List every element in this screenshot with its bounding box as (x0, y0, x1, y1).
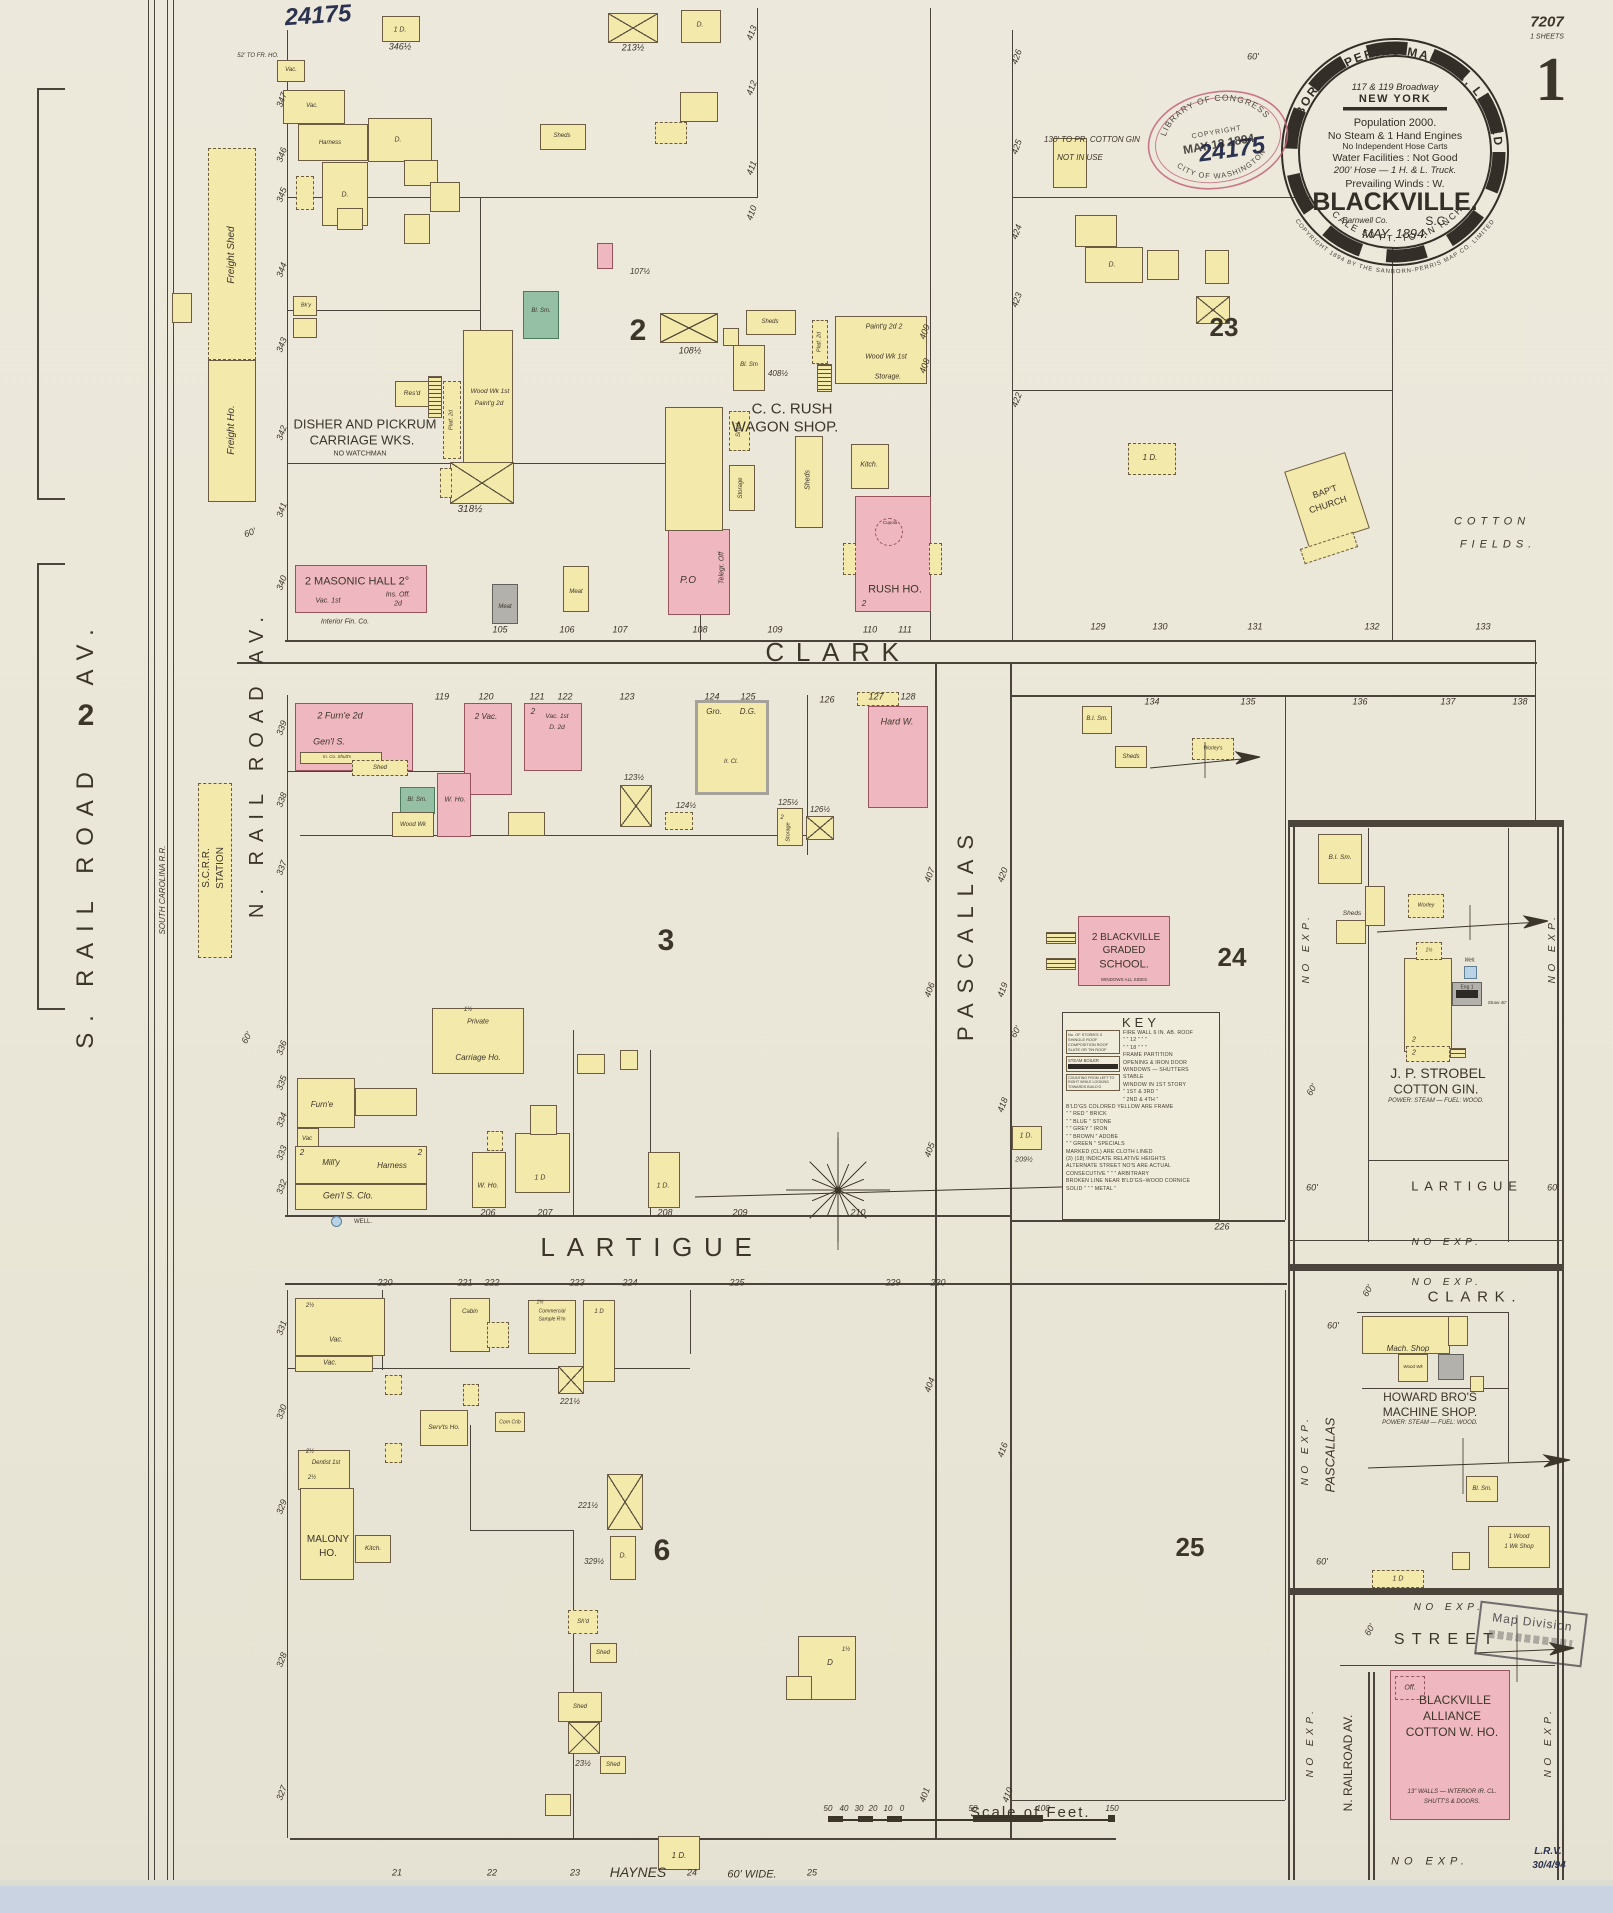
map-label: 123½ (624, 774, 644, 782)
map-label: Platf. 2d (449, 410, 455, 430)
key-steam-boiler: STEAM BOILER (1068, 1058, 1099, 1063)
map-label: NOT IN USE (1057, 154, 1103, 162)
map-line (37, 563, 39, 1010)
map-label: Wood Wk (1403, 1365, 1423, 1370)
map-label: 1 Wk Shop (1504, 1544, 1533, 1550)
map-label: 1 SHEETS (1530, 34, 1564, 41)
map-label: Worley (1417, 903, 1434, 909)
building (558, 1366, 584, 1394)
map-line (470, 1530, 573, 1531)
map-label: 138 (1512, 698, 1527, 707)
map-label: 220 (377, 1279, 392, 1288)
map-label: 2 (1412, 1050, 1416, 1057)
map-label: 2 (862, 600, 866, 608)
map-label: 121 (529, 693, 544, 702)
block-24: 24 (1218, 944, 1247, 970)
map-line (1340, 1665, 1555, 1666)
map-label: Shed (573, 1704, 587, 1710)
key-line: ” 2ND & 4TH ” (1123, 1097, 1216, 1104)
map-label: B.I. Sm. (1086, 716, 1107, 722)
seal-address: 117 & 119 Broadway (1352, 82, 1440, 93)
map-label: 60' (1247, 53, 1259, 62)
scale-tick: 10 (884, 1804, 893, 1813)
map-label: Storage (786, 822, 792, 841)
building (648, 1152, 680, 1208)
map-label: Mill'y (322, 1159, 340, 1167)
seal-state: S.C. (1425, 214, 1448, 228)
seal-county: Barnwell Co. (1342, 216, 1387, 225)
map-label: 209 (732, 1209, 747, 1218)
seal-hose: 200' Hose — 1 H. & L. Truck. (1333, 165, 1457, 176)
map-label: 52' TO FR. HO. (237, 53, 278, 59)
map-line (1293, 820, 1295, 1913)
map-line (1012, 197, 1392, 198)
map-label: 21 (392, 1869, 402, 1878)
key-line: MARKED (CL) ARE CLOTH LINED (1066, 1149, 1216, 1156)
map-label: 108½ (679, 347, 702, 356)
sheet-number: 1 (1536, 49, 1567, 111)
map-line (167, 0, 168, 1913)
building (172, 293, 192, 323)
map-label: NO EXP. (1412, 1238, 1483, 1248)
key-line: SOLID ” ” ” METAL ” (1066, 1186, 1216, 1193)
map-label: 60' (1305, 1083, 1319, 1098)
seal-city: NEW YORK (1359, 93, 1431, 105)
scale-tick: 150 (1105, 1804, 1118, 1813)
map-label: 420 (996, 866, 1010, 883)
map-label: D. (620, 1553, 627, 1560)
key-line: ” ” 18 ” ” ” (1123, 1045, 1216, 1052)
label-freight-shed: Freight Shed (227, 226, 237, 283)
map-line (1562, 820, 1564, 1913)
building (843, 543, 856, 575)
map-label: Bl. Sm (740, 362, 758, 368)
building (1147, 250, 1179, 280)
map-label: 1½ (464, 1007, 472, 1013)
map-label: In. Co. Shutt's (323, 755, 351, 760)
map-label: D.G. (740, 708, 756, 716)
map-label: 2 (78, 701, 95, 731)
map-label: CARRIAGE WKS. (310, 434, 415, 447)
map-label: WAGON SHOP. (732, 420, 839, 435)
map-label: 419 (996, 981, 1010, 998)
map-label: 1 D. (394, 27, 407, 34)
map-line (37, 88, 65, 90)
key-title: KEY (1066, 1015, 1216, 1030)
map-line (1368, 1672, 1370, 1905)
map-label: Vac. (306, 103, 318, 109)
building (385, 1443, 402, 1463)
map-line (285, 1283, 1287, 1285)
map-label: 2½ (306, 1303, 314, 1309)
map-label: Gen'l S. (313, 738, 345, 747)
key-line: ALTERNATE STREET NO'S ARE ACTUAL (1066, 1163, 1216, 1170)
building (472, 1152, 506, 1208)
street-haynes: HAYNES (610, 1865, 667, 1879)
map-label: 209½ (1015, 1157, 1033, 1164)
seal-winds: Prevailing Winds : W. (1345, 178, 1444, 190)
map-label: 426 (1010, 48, 1024, 65)
map-label: POWER: STEAM — FUEL: WOOD. (1388, 1098, 1484, 1104)
map-line (1508, 1312, 1509, 1462)
map-label: 126 (819, 696, 834, 705)
key-line: ” ” RED ” BRICK (1066, 1111, 1216, 1118)
map-line (1557, 820, 1559, 1913)
map-label: 213½ (622, 44, 645, 53)
map-label: Carriage Ho. (455, 1054, 500, 1062)
key-line: BROKEN LINE NEAR B'LD'GS–WOOD CORNICE (1066, 1178, 1216, 1185)
map-label: 133 (1475, 623, 1490, 632)
map-line (1010, 695, 1535, 697)
map-label: 129 (1090, 623, 1105, 632)
map-label: Harness (377, 1162, 407, 1170)
map-label: Sheds (553, 133, 570, 139)
map-label: Gen'l S. Clo. (323, 1192, 373, 1201)
map-label: NO EXP. (1301, 1415, 1311, 1486)
map-line (1357, 1312, 1509, 1313)
map-label: N. RAILROAD AV. (1342, 1715, 1354, 1812)
building (295, 565, 427, 613)
map-label: 1½ (842, 1647, 850, 1653)
svg-text:COPYRIGHT 1894 BY THE SANBORN-: COPYRIGHT 1894 BY THE SANBORN-PERRIS MAP… (1294, 218, 1497, 275)
map-label: Paint'g 2d 2 (866, 324, 903, 331)
map-line (287, 1290, 288, 1838)
key-line: ” 1ST & 3RD ” (1123, 1089, 1216, 1096)
map-label: Straw 40' (1488, 1001, 1507, 1006)
map-line (1288, 1588, 1564, 1595)
key-line: ” ” GREY ” IRON (1066, 1126, 1216, 1133)
map-label: 229 (885, 1279, 900, 1288)
key-line: ” ” 12 ” ” ” (1123, 1037, 1216, 1044)
map-label: B.I. Sm. (1328, 855, 1351, 862)
map-label: 2 Vac. (475, 713, 497, 721)
map-label: 60' (240, 1031, 254, 1046)
map-label: NO EXP. (1544, 1707, 1554, 1778)
map-line (690, 1290, 691, 1354)
map-label: Harness (319, 140, 341, 146)
map-line (1392, 197, 1393, 640)
map-label: Wood Wk 1st (471, 389, 510, 396)
map-label: SOUTH CAROLINA R.R. (159, 845, 167, 934)
map-label: 2½ (308, 1475, 316, 1481)
map-label: 124½ (676, 802, 696, 810)
map-label: 13" WALLS — INTERIOR IR. CL. (1407, 1789, 1496, 1795)
map-label: LARTIGUE (1411, 1180, 1523, 1193)
map-label: S.C.R.R. (202, 848, 212, 887)
map-line (1010, 1220, 1285, 1222)
building (296, 176, 314, 210)
map-label: 2d (394, 601, 402, 608)
seal-ring-text: SANBORN — PERRIS MAP CO., LIMITED (1284, 44, 1506, 148)
map-label: 120 (478, 693, 493, 702)
building (337, 208, 363, 230)
map-label: 416 (996, 1441, 1010, 1458)
map-label: 408½ (768, 370, 788, 378)
map-label: 60' WIDE. (727, 1870, 776, 1881)
building (1456, 990, 1478, 998)
map-label: POWER: STEAM — FUEL: WOOD. (1382, 1420, 1478, 1426)
map-label: Sheds (1122, 754, 1139, 760)
building (440, 468, 452, 498)
map-line (470, 1425, 471, 1530)
key-symbol-boxes: No. OF STORIES 3SHINGLE ROOFCOMPOSITION … (1066, 1030, 1120, 1104)
map-label: 107 (612, 626, 627, 635)
map-line (37, 563, 65, 565)
block-2: 2 (630, 316, 647, 346)
map-number: 7207 (1530, 15, 1563, 30)
building (293, 318, 317, 338)
map-label: Shed (596, 1650, 610, 1656)
map-label: Shed (373, 765, 387, 771)
surveyor-initials: L.R.V. (1534, 1847, 1561, 1857)
scale-tick: 100 (1036, 1804, 1049, 1813)
svg-text:LIBRARY OF CONGRESS: LIBRARY OF CONGRESS (1153, 84, 1273, 139)
map-label: Furn'e (311, 1101, 333, 1109)
building (577, 1054, 605, 1074)
key-counting-note: COUNTING FROM LEFT TO RIGHT WHILE LOOKIN… (1066, 1074, 1120, 1091)
map-label: Vac. (329, 1337, 343, 1344)
map-label: SCHOOL. (1099, 960, 1149, 971)
building (1053, 138, 1087, 188)
building (1336, 920, 1366, 944)
map-line (757, 8, 758, 198)
map-label: Worley's (1203, 747, 1222, 752)
street-lartigue: LARTIGUE (540, 1234, 763, 1260)
map-label: 131 (1247, 623, 1262, 632)
map-label: Interior Fin. Co. (321, 619, 369, 626)
map-label: FIELDS. (1460, 540, 1536, 551)
map-label: Storage. (875, 374, 901, 381)
map-label: D. (1109, 262, 1116, 269)
loc-stamp-top: LIBRARY OF CONGRESS (1153, 84, 1273, 139)
map-line (37, 88, 39, 500)
label-rush-house: RUSH HO. (868, 585, 922, 596)
building (428, 376, 442, 418)
map-line (154, 0, 155, 1913)
map-label: SHUTT'S & DOORS. (1424, 1799, 1480, 1805)
map-label: 1 D. (1020, 1133, 1033, 1140)
building (680, 92, 718, 122)
map-label: 221 (457, 1279, 472, 1288)
building (786, 1676, 812, 1700)
map-line (573, 1030, 574, 1215)
label-alliance-warehouse: BLACKVILLE (1419, 1694, 1491, 1706)
street-s-rail-road-av: S. RAIL ROAD (74, 761, 98, 1048)
map-label: 60' (1547, 1184, 1559, 1193)
sanborn-map-page: 24175130' TO PR. COTTON GINNOT IN USE720… (0, 0, 1613, 1913)
compass-rose (786, 1138, 890, 1242)
map-label: 135 (1240, 698, 1255, 707)
building (929, 543, 942, 575)
map-line (1285, 695, 1286, 1220)
building (1075, 215, 1117, 247)
map-label: Kitch. (860, 462, 878, 469)
building (817, 364, 832, 392)
scale-tick: 0 (900, 1804, 904, 1813)
map-line (148, 0, 149, 1913)
building (355, 1088, 417, 1116)
scale-bar: Scale of Feet. 5040302010050100150 (810, 1800, 1140, 1856)
building (607, 1474, 643, 1530)
scale-tick: 40 (840, 1804, 849, 1813)
map-label: CLARK. (1428, 1290, 1523, 1305)
map-label: 418 (996, 1096, 1010, 1113)
map-line (1012, 390, 1392, 391)
map-label: STATION (216, 847, 226, 889)
map-label: 423 (1010, 291, 1024, 308)
map-label: Wood Wk 1st (865, 354, 907, 361)
map-label: 119 (435, 693, 449, 702)
map-line (1373, 1672, 1375, 1905)
map-label: AV. (74, 618, 98, 685)
block-6: 6 (654, 1536, 671, 1566)
map-label: 2 (418, 1149, 422, 1157)
building (404, 214, 430, 244)
map-line (1288, 820, 1290, 1913)
map-label: NO EXP. (1391, 1857, 1469, 1868)
map-label: 1 D (535, 1175, 546, 1182)
map-label: Meat (569, 589, 582, 595)
map-label: Sample R'm (538, 1318, 565, 1323)
building (1365, 886, 1385, 926)
key-line: (3) (18) INDICATE RELATIVE HEIGHTS (1066, 1156, 1216, 1163)
map-label: 206 (480, 1209, 495, 1218)
seal-hose-carts: No Independent Hose Carts (1342, 141, 1447, 151)
map-label: NO EXP. (1302, 913, 1312, 984)
map-label: Bk'y (301, 303, 311, 309)
map-label: 230 (930, 1279, 945, 1288)
map-label: Vac. (323, 1360, 337, 1367)
map-line (37, 1008, 65, 1010)
map-label: Cabin (462, 1309, 478, 1315)
map-label: 207 (537, 1209, 552, 1218)
map-label: 425 (1010, 138, 1024, 155)
seal-engines: No Steam & 1 Hand Engines (1328, 130, 1462, 142)
scale-tick: 20 (869, 1804, 878, 1813)
seal-town: BLACKVILLE. (1312, 188, 1477, 216)
map-label: 110 (863, 626, 877, 635)
building (660, 313, 718, 343)
map-label: Off. (1404, 1685, 1415, 1692)
street-pascallas: PASCALLAS (955, 825, 977, 1041)
key-line: CONSECUTIVE ” ” ” ARBITRARY (1066, 1171, 1216, 1178)
building (620, 785, 652, 827)
map-label: Mach. Shop (1387, 1345, 1430, 1353)
map-label: 105 (492, 626, 507, 635)
building (1046, 958, 1076, 970)
map-label: Telegr. Off (719, 552, 726, 584)
map-line (37, 498, 65, 500)
building (545, 1794, 571, 1816)
map-label: 128 (900, 693, 915, 702)
map-label: NO EXP. (1548, 913, 1558, 984)
building (806, 816, 834, 840)
map-line (1368, 1160, 1508, 1161)
map-label: Paint'g 2d (475, 401, 504, 408)
key-line: WINDOWS — SHUTTERS (1123, 1067, 1216, 1074)
map-line (1285, 1290, 1286, 1800)
map-division-stamp: Map Division (1474, 1601, 1588, 1668)
map-label: 2 (1412, 1037, 1416, 1044)
map-label: 122 (557, 693, 572, 702)
building (620, 1050, 638, 1070)
map-label: 222 (484, 1279, 499, 1288)
map-label: Well. (1464, 959, 1475, 964)
map-label: 1½ (537, 1301, 544, 1306)
key-line: WINDOW IN 1ST STORY (1123, 1082, 1216, 1089)
svg-text:SCALE 50 FT. TO AN INCH: SCALE 50 FT. TO AN INCH (1330, 144, 1465, 243)
seal-scale: SCALE 50 FT. TO AN INCH (1330, 144, 1465, 243)
key-line: OPENING & IRON DOOR (1123, 1060, 1216, 1067)
map-label: 2 (780, 815, 783, 821)
map-label: 126½ (810, 806, 830, 814)
key-roof-line: SLATE OR TIN ROOF (1068, 1047, 1118, 1052)
building (487, 1322, 509, 1348)
building (295, 1146, 427, 1184)
building (450, 462, 514, 504)
building (665, 407, 723, 531)
building (450, 1298, 490, 1352)
map-label: 134 (1144, 698, 1159, 707)
map-label: Commercial (539, 1310, 566, 1315)
map-label: Private (467, 1019, 489, 1026)
seal-copyright: COPYRIGHT 1894 BY THE SANBORN-PERRIS MAP… (1294, 218, 1497, 275)
block-23: 23 (1210, 314, 1239, 340)
svg-text:SANBORN — PERRIS MAP CO., LIMI: SANBORN — PERRIS MAP CO., LIMITED (1284, 44, 1506, 148)
map-label: 223 (569, 1279, 584, 1288)
seal-water: Water Facilities : Not Good (1332, 152, 1457, 164)
key-line: FRAME PARTITION (1123, 1052, 1216, 1059)
scan-backing (0, 1886, 1613, 1913)
map-label: 111 (898, 626, 912, 635)
map-line (300, 835, 810, 836)
map-label: ALLIANCE (1423, 1710, 1481, 1722)
map-label: Vac. (285, 67, 297, 73)
map-label: 23½ (575, 1760, 591, 1768)
building (385, 1375, 402, 1395)
building (1438, 1354, 1464, 1380)
map-label: 137 (1440, 698, 1455, 707)
map-label: Vac (302, 1136, 312, 1142)
key-line: ” ” BROWN ” ADOBE (1066, 1134, 1216, 1141)
label-well: WELL. (354, 1219, 372, 1225)
map-label: 1 D. (672, 1852, 687, 1860)
building (1046, 932, 1076, 944)
map-label: Sheds (1343, 911, 1361, 918)
map-label: 125 (740, 693, 755, 702)
map-label: 210 (850, 1209, 865, 1218)
map-label: Ir. Cl. (724, 759, 738, 765)
map-line (287, 695, 288, 1215)
map-line (1535, 640, 1536, 822)
map-label: 2 (531, 708, 535, 716)
map-label: 136 (1352, 698, 1367, 707)
map-label: D. (342, 192, 349, 199)
map-label: 226 (1214, 1223, 1229, 1232)
map-label: Kitch. (365, 1546, 381, 1553)
north-arrow-line (695, 1186, 1096, 1197)
map-line (573, 1530, 574, 1838)
map-label: Storage (738, 477, 744, 498)
map-label: NO EXP. (1306, 1707, 1316, 1778)
map-label: Bl. Sm. (1472, 1486, 1491, 1492)
scale-tick: 30 (855, 1804, 864, 1813)
building (523, 291, 559, 339)
map-label: 410 (745, 204, 759, 221)
map-label: Wood Wk (400, 822, 426, 828)
map-label: GRADED (1103, 946, 1146, 956)
map-label: Eng 1 (1460, 986, 1473, 991)
